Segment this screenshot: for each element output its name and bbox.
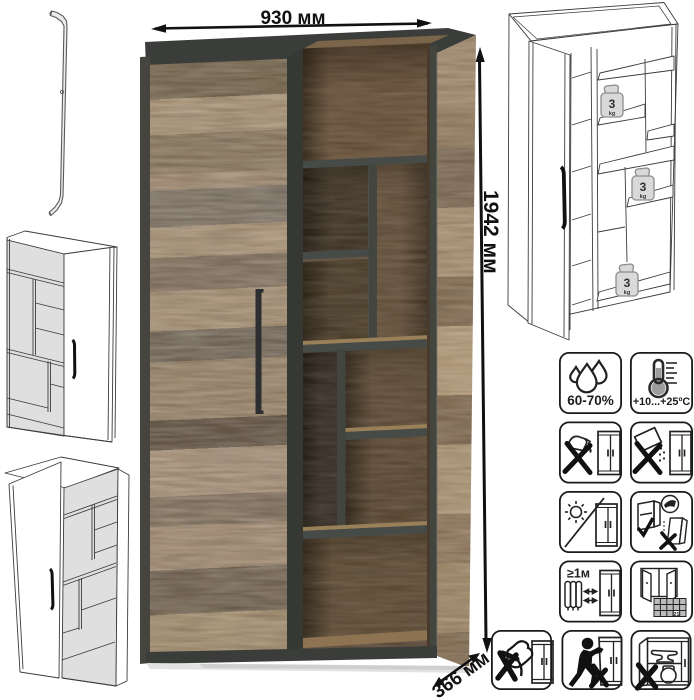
svg-text:3: 3 (640, 180, 647, 194)
svg-text:1942 мм: 1942 мм (479, 190, 502, 274)
svg-text:3: 3 (609, 97, 616, 111)
svg-text:+10...+25ºC: +10...+25ºC (633, 396, 691, 408)
svg-text:kg: kg (609, 111, 615, 117)
svg-text:kg: kg (624, 290, 630, 296)
svg-text:60-70%: 60-70% (567, 393, 614, 408)
svg-text:21: 21 (673, 612, 679, 618)
svg-text:kg: kg (640, 194, 646, 200)
svg-text:≥1м: ≥1м (567, 567, 590, 581)
svg-text:3: 3 (624, 276, 631, 290)
